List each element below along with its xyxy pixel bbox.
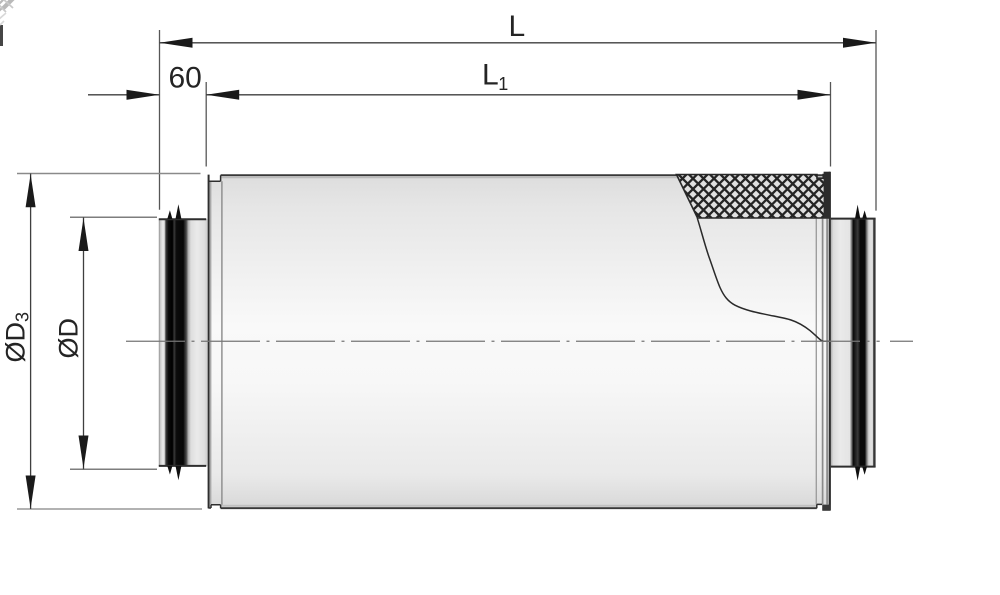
svg-text:ØD: ØD xyxy=(54,318,84,359)
svg-text:L: L xyxy=(509,10,526,43)
svg-text:60: 60 xyxy=(169,62,202,95)
